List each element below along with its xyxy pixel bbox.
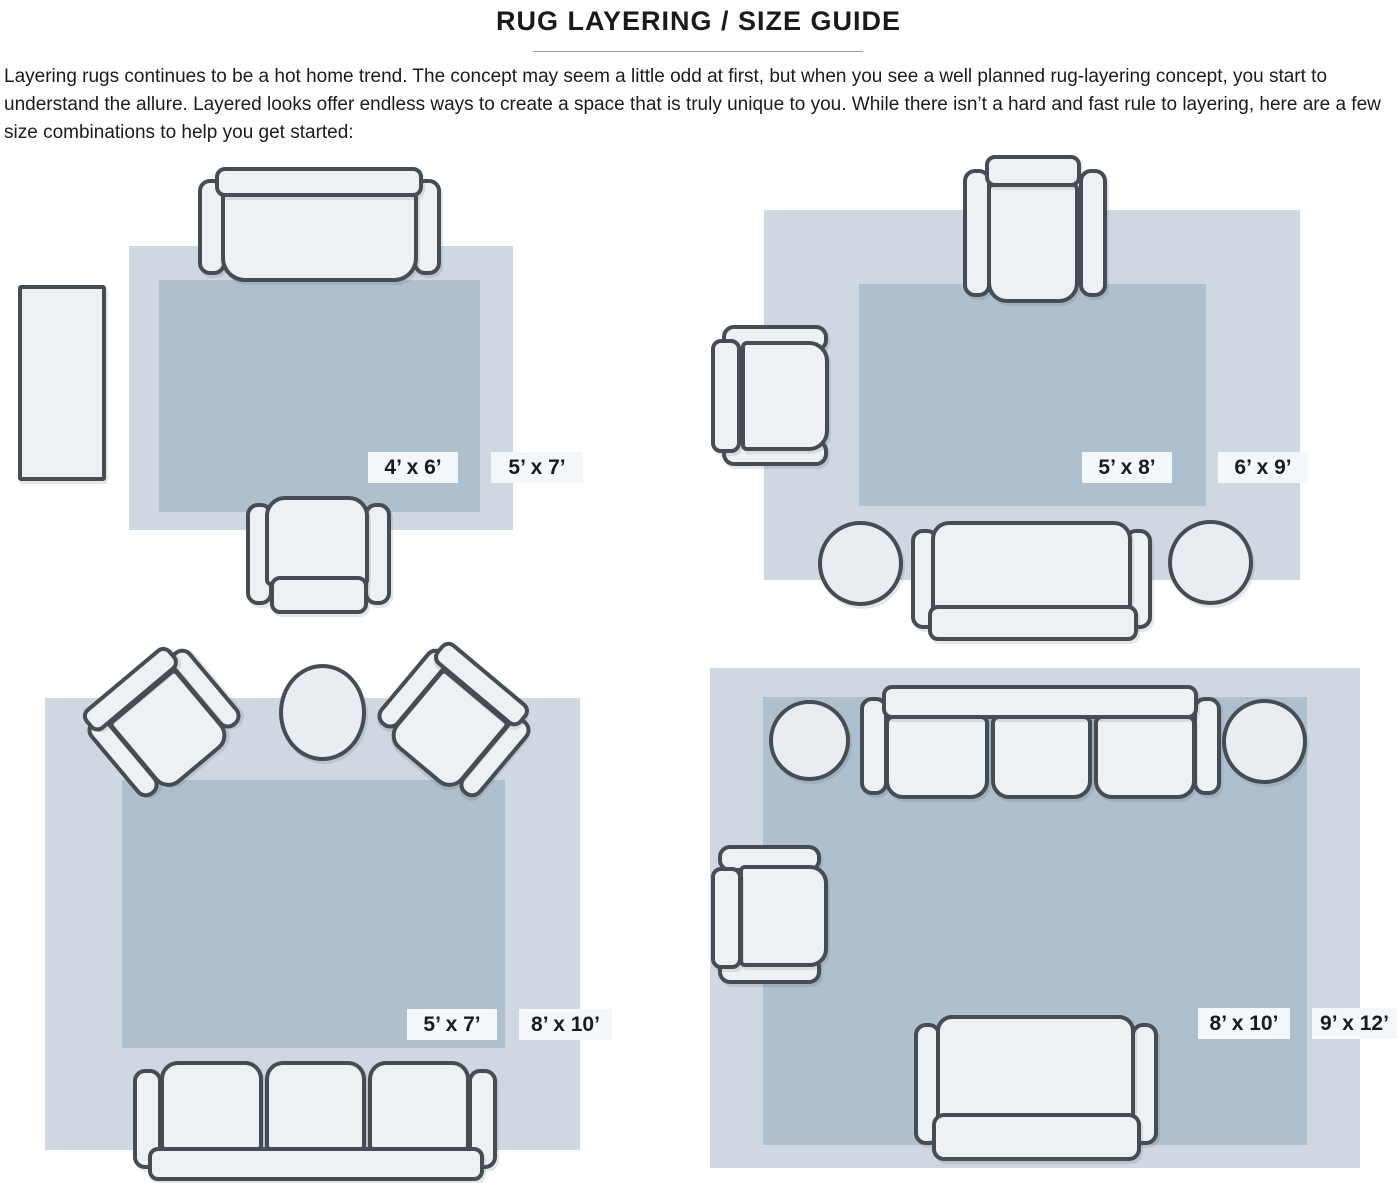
armchair-seat xyxy=(987,183,1079,303)
armchair-right-arm xyxy=(1079,169,1107,297)
round-pouf-left xyxy=(818,521,903,606)
sofa-seat-cushion xyxy=(368,1061,470,1153)
sofa-back-cushion xyxy=(882,685,1198,719)
rug-size-guide-infographic: RUG LAYERING / SIZE GUIDE Layering rugs … xyxy=(0,0,1397,1183)
inner-rug-size-label: 8’ x 10’ xyxy=(1198,1008,1290,1039)
outer-rug-size-label: 6’ x 9’ xyxy=(1218,452,1308,483)
inner-rug-size-label: 5’ x 8’ xyxy=(1082,452,1172,483)
round-pouf-right xyxy=(1168,520,1253,605)
round-pouf-right xyxy=(1222,699,1307,784)
loveseat-back-cushion xyxy=(932,1113,1141,1161)
sofa-seat-cushion xyxy=(885,715,989,799)
sofa-seat xyxy=(931,521,1132,613)
intro-paragraph: Layering rugs continues to be a hot home… xyxy=(4,63,1394,147)
armchair-seat xyxy=(265,496,369,586)
armchair-seat xyxy=(739,865,828,967)
round-pouf-left xyxy=(769,700,850,781)
sofa-back-cushion xyxy=(148,1147,484,1181)
outer-rug-size-label: 9’ x 12’ xyxy=(1312,1008,1397,1039)
sofa-seat-cushion xyxy=(991,715,1092,799)
page-title: RUG LAYERING / SIZE GUIDE xyxy=(0,6,1397,37)
sofa-seat-cushion xyxy=(265,1061,366,1153)
console-table xyxy=(18,285,106,481)
inner-rug-size-label: 5’ x 7’ xyxy=(407,1009,497,1040)
armchair-back-cushion xyxy=(985,155,1081,187)
armchair-back-cushion xyxy=(270,576,368,614)
inner-rug xyxy=(122,780,505,1048)
sofa-back-cushion xyxy=(928,605,1138,641)
inner-rug-size-label: 4’ x 6’ xyxy=(368,452,458,483)
sofa-back-cushion xyxy=(215,167,423,197)
loveseat-seat xyxy=(936,1015,1135,1129)
armchair-back-cushion xyxy=(711,867,742,969)
armchair-back-cushion xyxy=(711,339,741,453)
armchair-seat xyxy=(741,341,829,451)
outer-rug-size-label: 8’ x 10’ xyxy=(519,1009,612,1040)
outer-rug-size-label: 5’ x 7’ xyxy=(491,452,583,483)
sofa-seat xyxy=(221,192,418,282)
round-table xyxy=(279,664,366,761)
sofa-seat-cushion xyxy=(1094,715,1196,799)
title-divider xyxy=(533,51,863,52)
sofa-seat-cushion xyxy=(160,1061,263,1153)
